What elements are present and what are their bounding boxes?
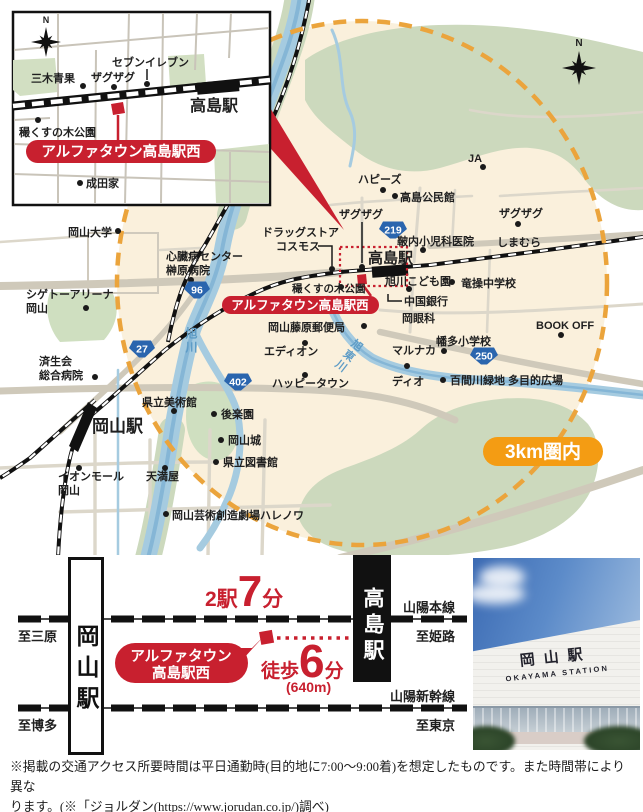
inset-compass-n: N xyxy=(43,15,50,25)
inset-label-seven-eleven: セブンイレブン xyxy=(112,55,189,69)
ride-prefix: 2駅 xyxy=(205,583,238,613)
inset-label-miki-seika: 三木青果 xyxy=(31,71,75,85)
label-takashima-station: 高島駅 xyxy=(368,249,414,267)
line-sanyo-main-label: 山陽本線 xyxy=(403,600,456,615)
ride-number: 7 xyxy=(238,570,262,614)
balloon-label-2: 高島駅西 xyxy=(152,664,210,682)
footnote: ※掲載の交通アクセス所要時間は平日通勤時(目的地に7:00〜9:00着)を想定し… xyxy=(10,757,637,812)
label-okayama-castle: 岡山城 xyxy=(228,433,261,447)
label-oka-ganka: 岡眼科 xyxy=(402,311,435,325)
svg-text:219: 219 xyxy=(384,225,402,237)
label-shigeto-1: シゲトーアリーナ xyxy=(26,287,114,301)
label-pref-library: 県立図書館 xyxy=(223,455,278,469)
svg-text:402: 402 xyxy=(229,377,247,389)
label-drugstore-1: ドラッグストア xyxy=(262,225,339,239)
label-saiseikai-1: 済生会 xyxy=(39,354,73,368)
label-drugstore-2: コスモス xyxy=(276,241,320,253)
svg-text:96: 96 xyxy=(191,285,203,297)
dir-himeji: 至姫路 xyxy=(416,629,456,644)
label-bookoff: BOOK OFF xyxy=(536,320,594,332)
label-zagzag-w: ザグザグ xyxy=(339,207,383,221)
inset-label-naritaya: 成田家 xyxy=(86,176,120,190)
line-shinkansen-label: 山陽新幹線 xyxy=(390,689,456,704)
label-aeon-2: 岡山 xyxy=(58,483,80,497)
label-hyakken: 百間川緑地 多目的広場 xyxy=(450,373,563,387)
svg-text:250: 250 xyxy=(475,351,493,363)
walk-distance: (640m) xyxy=(286,679,331,695)
footnote-line-1: ※掲載の交通アクセス所要時間は平日通勤時(目的地に7:00〜9:00着)を想定し… xyxy=(10,757,637,797)
label-marunaka: マルナカ xyxy=(392,344,436,357)
footnote-line-2: ります。(※「ジョルダン(https://www.jorudan.co.jp/)… xyxy=(10,797,637,812)
label-tenmaya: 天満屋 xyxy=(146,469,179,483)
label-art-museum: 県立美術館 xyxy=(142,395,197,409)
label-pediatric-clinic: 鞁内小児科医院 xyxy=(397,234,474,248)
inset-site-badge-label: アルファタウン高島駅西 xyxy=(41,143,200,161)
label-shimamura: しまむら xyxy=(497,236,541,249)
dir-mihara: 至三原 xyxy=(18,629,57,644)
label-ryuso-jhs: 竜操中学校 xyxy=(461,276,517,290)
site-badge-main-label: アルファタウン高島駅西 xyxy=(231,298,368,313)
inset-map: N セブンイレブン 三木青果 ザグザグ 高島駅 穝くすの木公園 アルファタウン高… xyxy=(13,12,270,205)
label-kominkan: 高島公民館 xyxy=(400,190,455,204)
walk-time: 徒歩6分 xyxy=(261,638,344,684)
label-dio: ディオ xyxy=(392,374,424,388)
label-halenowa: 岡山芸術創造劇場ハレノワ xyxy=(172,508,304,522)
label-hata-elem: 幡多小学校 xyxy=(436,334,492,348)
ride-suffix: 分 xyxy=(262,583,283,613)
ride-time: 2駅7分 xyxy=(205,570,283,614)
label-okayama-univ: 岡山大学 xyxy=(68,225,112,239)
main-map: N 岡山大学 ドラッグストア コスモス 心臓病センター 榊原病院 シゲトーアリー… xyxy=(0,0,643,555)
location-map-page: { "inset": { "north": "N", "station_labe… xyxy=(0,0,643,812)
label-aeon-1: イオンモール xyxy=(58,470,124,483)
okayama-station-photo: 岡山駅 OKAYAMA STATION xyxy=(473,558,640,750)
label-okayama-station: 岡山駅 xyxy=(92,417,144,436)
inset-label-kunugi-park: 穝くすの木公園 xyxy=(19,125,96,139)
label-heart-center-2: 榊原病院 xyxy=(166,263,210,277)
3km-badge-label: 3km圏内 xyxy=(505,440,581,463)
label-kunugi-park: 穝くすの木公園 xyxy=(291,282,366,295)
takashima-station-box: 高島駅 xyxy=(353,555,391,682)
walk-number: 6 xyxy=(299,638,325,684)
compass-n-label: N xyxy=(575,38,582,49)
cloud xyxy=(473,584,525,604)
svg-text:27: 27 xyxy=(136,344,148,356)
label-chugoku-bank: 中国銀行 xyxy=(404,294,448,308)
dir-tokyo: 至東京 xyxy=(416,718,455,733)
label-fujiwara-post: 岡山藤原郵便局 xyxy=(268,320,345,334)
label-zagzag-e: ザグザグ xyxy=(499,206,543,220)
label-shigeto-2: 岡山 xyxy=(26,301,48,315)
river-label-asahi: 旭川 xyxy=(183,327,200,355)
label-korakuen: 後楽園 xyxy=(221,407,254,421)
inset-label-takashima-station: 高島駅 xyxy=(190,96,239,115)
label-happys: ハピーズ xyxy=(358,172,401,186)
label-ja: JA xyxy=(468,153,482,165)
inset-label-zagzag: ザグザグ xyxy=(91,70,135,84)
label-kodomoen: 旭川こども園 xyxy=(384,274,451,288)
dir-hakata: 至博多 xyxy=(18,718,57,733)
label-edion: エディオン xyxy=(264,344,318,358)
label-heart-center-1: 心臓病センター xyxy=(166,249,243,263)
inset-site-marker xyxy=(111,102,125,115)
balloon-label-1: アルファタウン xyxy=(130,648,231,665)
okayama-station-box: 岡山駅 xyxy=(68,557,104,755)
label-happy-town: ハッピータウン xyxy=(272,377,349,390)
label-saiseikai-2: 総合病院 xyxy=(39,368,83,382)
